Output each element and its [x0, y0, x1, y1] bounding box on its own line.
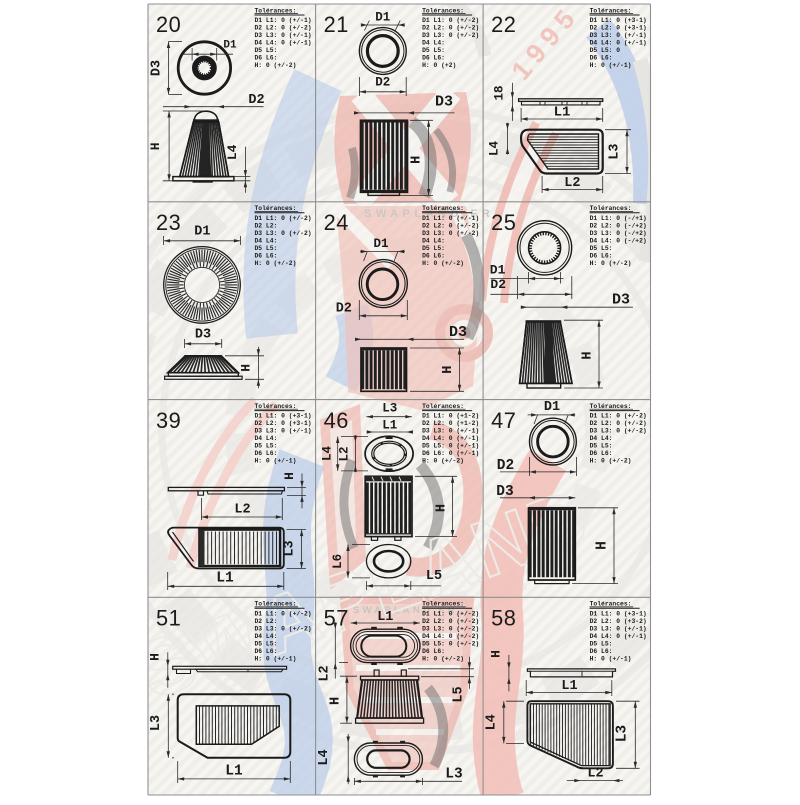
svg-text:D4 L4:: D4 L4: — [590, 435, 613, 442]
svg-text:D1 L1: 0 (+/-2): D1 L1: 0 (+/-2) — [422, 17, 479, 24]
svg-text:D2 L2: 0 (+/-2): D2 L2: 0 (+/-2) — [590, 420, 647, 427]
svg-text:H: 0 (+/-1): H: 0 (+/-1) — [255, 655, 297, 662]
svg-text:18: 18 — [492, 85, 506, 100]
svg-text:L4: L4 — [487, 141, 501, 157]
svg-text:L5: L5 — [426, 569, 442, 584]
svg-text:D1 L1: 0 (+/-2): D1 L1: 0 (+/-2) — [422, 610, 479, 617]
svg-text:D1 L1: 0 (+3-1): D1 L1: 0 (+3-1) — [255, 413, 312, 420]
svg-text:H: 0 (+/-2): H: 0 (+/-2) — [255, 62, 297, 69]
svg-text:H: H — [328, 697, 343, 705]
svg-text:D2 L2:: D2 L2: — [255, 618, 278, 625]
svg-text:D3 L3: 0 (+/-2): D3 L3: 0 (+/-2) — [590, 428, 647, 435]
svg-text:D1: D1 — [223, 40, 237, 52]
svg-text:D6 L6:: D6 L6: — [590, 648, 613, 655]
svg-text:D4 L4:: D4 L4: — [422, 40, 445, 47]
svg-text:51: 51 — [156, 606, 181, 631]
svg-text:L1: L1 — [382, 419, 397, 433]
svg-text:L2: L2 — [234, 503, 250, 518]
svg-text:D1 L1: 0 (+/-2): D1 L1: 0 (+/-2) — [255, 610, 312, 617]
svg-text:57: 57 — [324, 606, 349, 631]
svg-text:L2: L2 — [338, 446, 352, 461]
svg-text:D2 L2: 0 (+3-2): D2 L2: 0 (+3-2) — [590, 618, 647, 625]
svg-text:D5 L5:: D5 L5: — [255, 443, 278, 450]
svg-text:D3 L3: 0 (+/-2): D3 L3: 0 (+/-2) — [422, 230, 479, 237]
svg-text:D5 L5:: D5 L5: — [422, 245, 445, 252]
svg-text:24: 24 — [324, 210, 349, 235]
svg-text:L1: L1 — [377, 610, 393, 625]
svg-text:D1: D1 — [373, 237, 388, 251]
svg-text:D5 L5: 0 (+/-1): D5 L5: 0 (+/-1) — [422, 443, 479, 450]
svg-text:D6 L6:: D6 L6: — [255, 648, 278, 655]
svg-text:H: H — [580, 351, 595, 359]
svg-text:D6 L6:: D6 L6: — [255, 55, 278, 62]
svg-text:D3: D3 — [496, 484, 513, 500]
svg-text:D4 L4: 0 (+/-1): D4 L4: 0 (+/-1) — [255, 40, 312, 47]
svg-text:L3: L3 — [445, 767, 462, 783]
svg-text:H: H — [434, 504, 449, 512]
svg-text:H: H — [441, 366, 456, 374]
svg-text:D2 L2: 0 (+/-2): D2 L2: 0 (+/-2) — [422, 618, 479, 625]
svg-text:L3: L3 — [607, 143, 622, 159]
svg-text:L3: L3 — [282, 540, 297, 556]
svg-text:L4: L4 — [225, 144, 240, 160]
svg-text:D1 L1: 0 (+/-1): D1 L1: 0 (+/-1) — [422, 215, 479, 222]
svg-text:D3 L3: 0 (+/-2): D3 L3: 0 (+/-2) — [255, 230, 312, 237]
svg-text:H: H — [239, 364, 254, 372]
svg-text:L3: L3 — [615, 725, 631, 742]
svg-text:D3: D3 — [435, 93, 453, 110]
svg-text:H: 0 (+/-1): H: 0 (+/-1) — [255, 458, 297, 465]
svg-text:D4 L4: 0 (-/+2): D4 L4: 0 (-/+2) — [590, 237, 647, 244]
svg-text:D4 L4:: D4 L4: — [255, 633, 278, 640]
svg-text:H: 0 (+/-2): H: 0 (+/-2) — [590, 458, 632, 465]
svg-text:H: 0 (+2): H: 0 (+2) — [422, 62, 456, 69]
svg-text:D1 L1: 0 (+/-1): D1 L1: 0 (+/-1) — [255, 17, 312, 24]
svg-text:D3 L3: 0 (+/-1): D3 L3: 0 (+/-1) — [590, 625, 647, 632]
svg-text:23: 23 — [156, 210, 181, 235]
svg-text:L3: L3 — [149, 715, 164, 731]
svg-text:L4: L4 — [485, 714, 500, 730]
svg-text:H: 0 (+/-2): H: 0 (+/-2) — [422, 260, 464, 267]
svg-text:D6 L6:: D6 L6: — [590, 450, 613, 457]
svg-text:D4 L4:: D4 L4: — [422, 237, 445, 244]
svg-text:L6: L6 — [331, 554, 345, 569]
svg-text:D1 L1: 0 (+3-1): D1 L1: 0 (+3-1) — [590, 17, 647, 24]
svg-text:D3 L3: 0 (+/-1): D3 L3: 0 (+/-1) — [255, 32, 312, 39]
svg-text:D3: D3 — [449, 324, 467, 341]
svg-text:L2: L2 — [318, 665, 333, 681]
svg-text:D5 L5: 0 (+/-2): D5 L5: 0 (+/-2) — [422, 640, 479, 647]
svg-text:D1: D1 — [490, 263, 506, 278]
svg-text:L1: L1 — [561, 679, 577, 694]
svg-text:L1: L1 — [216, 571, 234, 587]
svg-text:H: 0 (+/-2): H: 0 (+/-2) — [422, 655, 464, 662]
svg-text:Tolérances:: Tolérances: — [255, 601, 297, 608]
svg-text:H: H — [148, 142, 163, 150]
svg-text:D6 L6:: D6 L6: — [255, 450, 278, 457]
svg-text:Tolérances:: Tolérances: — [422, 601, 464, 608]
svg-text:L1: L1 — [554, 105, 571, 121]
svg-text:D4 L4:: D4 L4: — [255, 435, 278, 442]
svg-text:L5: L5 — [452, 686, 467, 702]
svg-text:D2: D2 — [375, 76, 390, 90]
svg-text:D5 L5:: D5 L5: — [255, 245, 278, 252]
svg-text:H: H — [147, 653, 162, 661]
svg-text:D1: D1 — [375, 10, 390, 24]
svg-text:D5 L5:: D5 L5: — [255, 47, 278, 54]
svg-text:L2: L2 — [587, 767, 603, 782]
svg-text:21: 21 — [324, 12, 349, 37]
svg-text:D2 L2:: D2 L2: — [255, 222, 278, 229]
svg-text:D3 L3: 0 (-/+2): D3 L3: 0 (-/+2) — [590, 230, 647, 237]
svg-text:D5 L5:: D5 L5: — [590, 443, 613, 450]
svg-text:H: 0 (+/-2): H: 0 (+/-2) — [590, 260, 632, 267]
svg-text:D2: D2 — [248, 93, 264, 108]
svg-text:D4 L4: 0 (+/-1): D4 L4: 0 (+/-1) — [590, 633, 647, 640]
svg-text:D5 L5:: D5 L5: — [422, 47, 445, 54]
svg-text:D5 L5:: D5 L5: — [590, 245, 613, 252]
svg-text:D2 L2: 0 (+/-2): D2 L2: 0 (+/-2) — [422, 222, 479, 229]
svg-text:L4: L4 — [321, 446, 335, 462]
svg-text:D1 L1: 0 (+3-1): D1 L1: 0 (+3-1) — [590, 610, 647, 617]
svg-text:D4 L4: 0 (+/-1): D4 L4: 0 (+/-1) — [422, 435, 479, 442]
svg-text:D1 L1: 0 (+1-2): D1 L1: 0 (+1-2) — [422, 413, 479, 420]
svg-text:H: 0 (+/-2): H: 0 (+/-2) — [422, 458, 464, 465]
svg-text:D3 L3: 0 (+/-2): D3 L3: 0 (+/-2) — [422, 32, 479, 39]
svg-text:25: 25 — [491, 210, 516, 235]
svg-text:L2: L2 — [564, 176, 580, 191]
svg-text:D4 L4:: D4 L4: — [255, 237, 278, 244]
svg-text:H: 0 (+/-1): H: 0 (+/-1) — [590, 655, 632, 662]
svg-text:D2: D2 — [336, 302, 352, 317]
svg-text:H: H — [594, 541, 610, 550]
svg-text:D2 L2: 0 (+/-2): D2 L2: 0 (+/-2) — [255, 25, 312, 32]
svg-text:D3 L3: 0 (+/-1): D3 L3: 0 (+/-1) — [590, 32, 647, 39]
svg-text:D2: D2 — [490, 277, 506, 292]
svg-text:20: 20 — [156, 12, 181, 37]
svg-text:D2 L2: 0 (+/-2): D2 L2: 0 (+/-2) — [422, 25, 479, 32]
svg-text:H: 0 (+/-2): H: 0 (+/-2) — [255, 260, 297, 267]
svg-text:47: 47 — [491, 408, 516, 433]
svg-text:D3: D3 — [195, 328, 211, 343]
svg-text:D3 L3: 0 (+/-2): D3 L3: 0 (+/-2) — [422, 625, 479, 632]
svg-text:H: 0 (+/-1): H: 0 (+/-1) — [590, 62, 632, 69]
svg-text:D6 L6:: D6 L6: — [590, 252, 613, 259]
svg-text:D4 L4: 0 (+/-2): D4 L4: 0 (+/-2) — [422, 633, 479, 640]
svg-text:D6 L6: 0 (+/-1): D6 L6: 0 (+/-1) — [422, 450, 479, 457]
svg-text:D3 L3: 0 (+/-1): D3 L3: 0 (+/-1) — [422, 428, 479, 435]
svg-text:D5 L5:: D5 L5: — [590, 640, 613, 647]
svg-text:D2: D2 — [497, 458, 514, 474]
svg-text:D6 L6:: D6 L6: — [422, 252, 445, 259]
svg-text:D2 L2: 0 (-/+2): D2 L2: 0 (-/+2) — [590, 222, 647, 229]
svg-text:D1 L1: 0 (-/+1): D1 L1: 0 (-/+1) — [590, 215, 647, 222]
svg-text:L4: L4 — [317, 749, 332, 765]
svg-text:D6 L6:: D6 L6: — [422, 648, 445, 655]
svg-text:H: H — [488, 650, 503, 658]
svg-text:D3: D3 — [150, 60, 165, 76]
svg-text:D6 L6:: D6 L6: — [590, 55, 613, 62]
svg-text:L3: L3 — [382, 402, 397, 416]
svg-text:D2 L2: 0 (+3-1): D2 L2: 0 (+3-1) — [255, 420, 312, 427]
svg-text:D5 L5:: D5 L5: — [255, 640, 278, 647]
svg-text:D1 L1: 0 (+/-2): D1 L1: 0 (+/-2) — [255, 215, 312, 222]
svg-text:D1 L1: 0 (+/-2): D1 L1: 0 (+/-2) — [590, 413, 647, 420]
svg-text:22: 22 — [491, 12, 516, 37]
svg-text:L1: L1 — [225, 763, 243, 779]
svg-text:D1: D1 — [544, 400, 560, 415]
svg-text:58: 58 — [491, 606, 516, 631]
svg-text:39: 39 — [156, 408, 181, 433]
svg-text:D5 L5: 0: D5 L5: 0 — [590, 47, 621, 54]
svg-text:D6 L6:: D6 L6: — [255, 252, 278, 259]
svg-text:D3 L3: 0 (+/-2): D3 L3: 0 (+/-2) — [255, 625, 312, 632]
svg-text:D3 L3: 0 (+/-1): D3 L3: 0 (+/-1) — [255, 428, 312, 435]
svg-text:46: 46 — [324, 408, 349, 433]
svg-text:H: H — [282, 472, 297, 480]
svg-text:D2 L2: 0 (+1-2): D2 L2: 0 (+1-2) — [422, 420, 479, 427]
svg-text:D2 L2: 0 (+3-1): D2 L2: 0 (+3-1) — [590, 25, 647, 32]
svg-text:D4 L4: 0 (+/-1): D4 L4: 0 (+/-1) — [590, 40, 647, 47]
svg-text:D1: D1 — [194, 225, 210, 240]
svg-text:D6 L6:: D6 L6: — [422, 55, 445, 62]
svg-text:H: H — [410, 156, 425, 164]
svg-text:Tolérances:: Tolérances: — [590, 601, 632, 608]
svg-text:D3: D3 — [612, 292, 630, 309]
